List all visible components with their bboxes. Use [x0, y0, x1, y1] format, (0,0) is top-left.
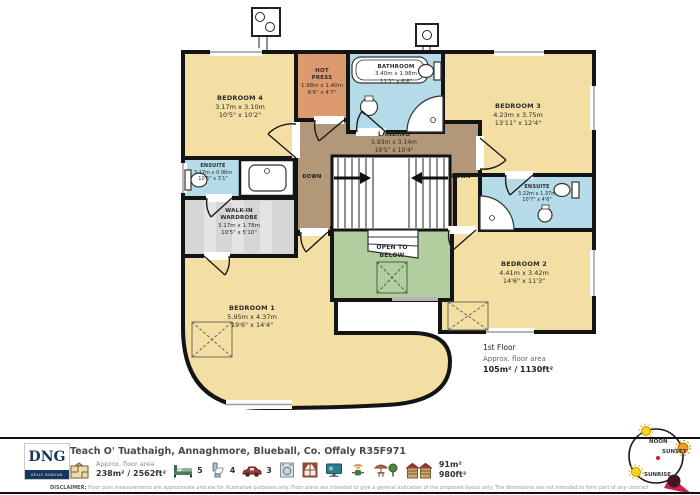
room-name: BEDROOM 4: [180, 94, 300, 103]
dng-logo: DNG KELLY DUNCAN: [24, 443, 70, 480]
room-label-landing: LANDING 5.93m x 3.14m 19'5" x 10'4": [334, 131, 454, 155]
window-icon: [302, 462, 318, 478]
room-label-bedroom-4: BEDROOM 4 3.17m x 3.10m 10'5" x 10'2": [180, 94, 300, 120]
disclaimer-text: DISCLAIMER: Floor plan measurements are …: [50, 485, 650, 491]
sun-path-compass: NOON SUNSET SUNRISE: [616, 412, 700, 495]
floor-plan-page: BEDROOM 4 3.17m x 3.10m 10'5" x 10'2" HO…: [0, 0, 700, 495]
compass-center-dot: [656, 456, 660, 460]
toilet-tank: [572, 182, 579, 198]
floor-title: 1st Floor: [483, 343, 553, 354]
property-stats-row: Approx. floor area 238m² / 2562ft² 5 4 3: [70, 459, 466, 481]
room-label-bedroom-2: BEDROOM 2 4.41m x 3.42m 14'6" x 11'3": [464, 260, 584, 286]
bottom-border: [0, 492, 700, 494]
room-label-open-to-below: OPEN TO BELOW: [364, 244, 420, 260]
garden-icon: [373, 462, 399, 478]
washing-machine-icon: [279, 462, 295, 478]
floor-info: 1st Floor Approx. floor area 105m² / 113…: [483, 343, 553, 376]
room-label-bedroom-1: BEDROOM 1 5.95m x 4.37m 19'6" x 14'4": [187, 304, 317, 330]
property-address: Teach O' Tuathaigh, Annaghmore, Blueball…: [70, 446, 406, 457]
bed-icon: [173, 462, 193, 478]
sink: [538, 208, 552, 222]
footer-divider: [0, 437, 700, 439]
chimney-stack: [252, 8, 438, 54]
bathroom-count: 4: [230, 466, 236, 475]
sunrise-label: SUNRISE: [644, 472, 671, 478]
garage-icon: [406, 462, 432, 479]
floor-plan-icon: [70, 462, 89, 479]
total-floor-area: Approx. floor area 238m² / 2562ft²: [96, 461, 166, 478]
room-label-hot-press: HOT PRESS 1.98m x 1.40m 6'6" x 4'7": [298, 68, 346, 97]
room-label-bedroom-3: BEDROOM 3 4.23m x 3.75m 13'11" x 12'4": [458, 102, 578, 128]
bed-count: 5: [197, 466, 203, 475]
room-label-ensuite-right: ENSUITE 3.22m x 1.37m 10'7" x 4'6": [502, 184, 572, 204]
down-label-left: DOWN: [294, 174, 330, 180]
floor-plan-graphic: [0, 0, 700, 437]
outdoor-area: 91m² 980ft²: [439, 460, 467, 479]
room-label-bathroom: BATHROOM 3.40m x 1.98m 11'2" x 6'6": [351, 64, 441, 86]
down-label-right: DOWN: [443, 174, 479, 180]
sunset-label: SUNSET: [662, 449, 687, 455]
room-label-ensuite-left: ENSUITE 3.17m x 0.96m 10'5" x 3'1": [185, 163, 241, 183]
tv-icon: [325, 462, 343, 478]
noon-label: NOON: [649, 439, 668, 445]
car-icon: [242, 463, 262, 478]
parking-count: 3: [266, 466, 272, 475]
sunrise-sun-icon: [629, 465, 643, 479]
room-label-walk-in-wardrobe: WALK-IN WARDROBE 3.17m x 1.78m 10'5" x 5…: [217, 208, 261, 237]
toilet-icon: [210, 462, 226, 478]
gardener-icon: [350, 462, 366, 478]
noon-sun-icon: [639, 424, 653, 438]
stairs-area: [332, 156, 450, 230]
